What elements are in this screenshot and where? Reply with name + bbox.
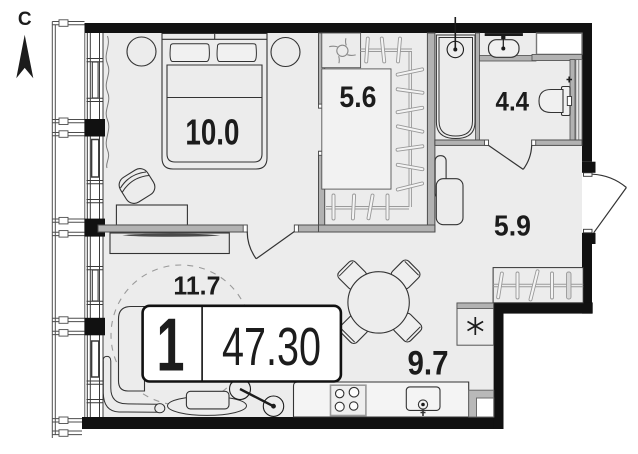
svg-text:10.0: 10.0	[185, 111, 239, 152]
svg-text:1: 1	[157, 303, 185, 387]
svg-text:5.9: 5.9	[494, 211, 531, 243]
svg-text:47.30: 47.30	[222, 317, 321, 377]
svg-text:С: С	[18, 9, 32, 30]
svg-text:5.6: 5.6	[339, 81, 376, 114]
svg-text:11.7: 11.7	[173, 271, 220, 301]
svg-text:4.4: 4.4	[496, 87, 530, 117]
svg-text:9.7: 9.7	[408, 345, 449, 383]
